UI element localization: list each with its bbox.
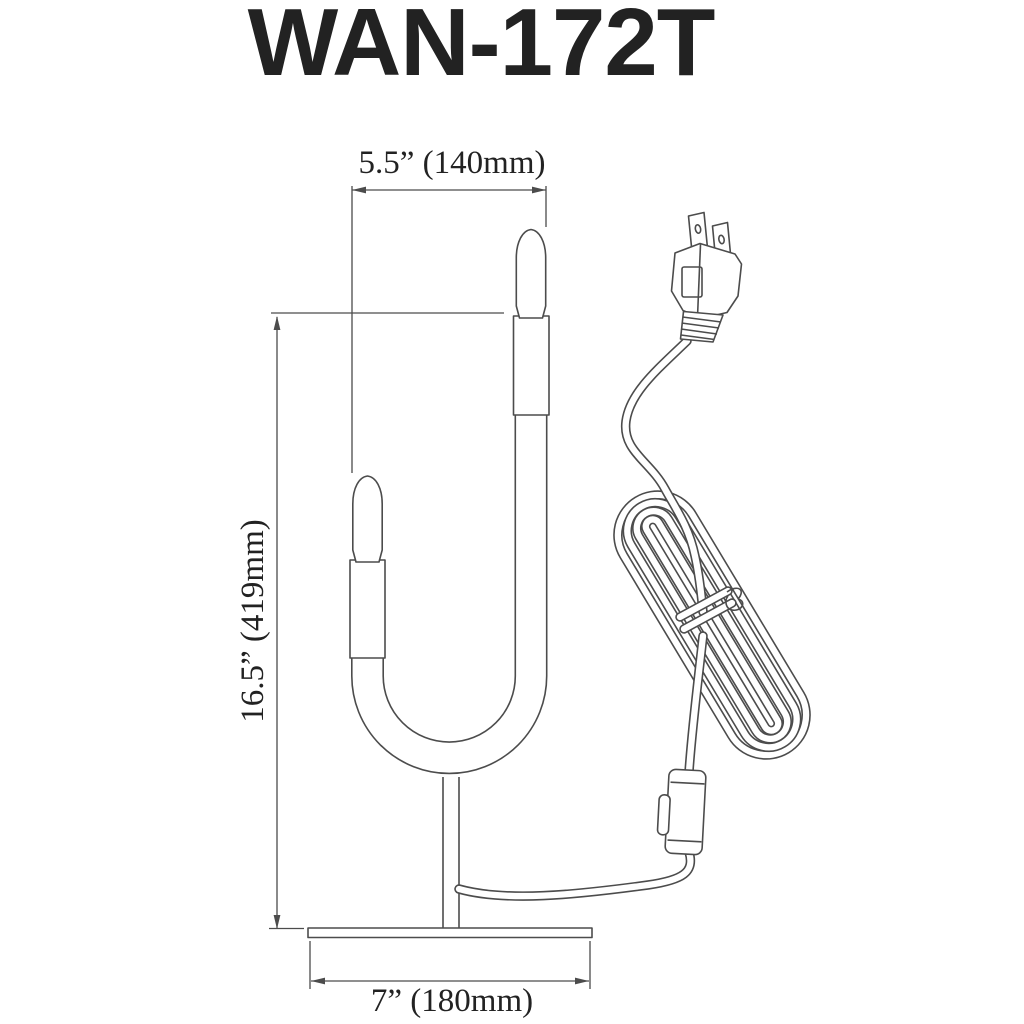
inline-switch — [656, 769, 706, 855]
dimension-label-base-width: 7” (180mm) — [302, 983, 602, 1020]
technical-drawing-page: WAN-172T — [0, 0, 1024, 1024]
u-shaped-lamp-body — [368, 316, 532, 758]
dimension-base-width — [310, 941, 590, 989]
switch-rocker — [657, 795, 670, 836]
upper-socket — [514, 316, 550, 415]
coiled-cord — [603, 480, 821, 770]
plug-strain-relief — [681, 312, 724, 343]
dimension-label-width: 5.5” (140mm) — [302, 145, 602, 182]
lower-bulb — [353, 476, 382, 562]
lamp-stem — [443, 777, 459, 928]
lower-socket — [350, 560, 385, 658]
dimension-height-left — [269, 313, 504, 929]
lamp-base — [308, 928, 592, 938]
upper-bulb — [516, 230, 545, 319]
two-prong-plug — [672, 213, 742, 343]
dimension-label-height: 16.5” (419mm) — [232, 471, 274, 771]
